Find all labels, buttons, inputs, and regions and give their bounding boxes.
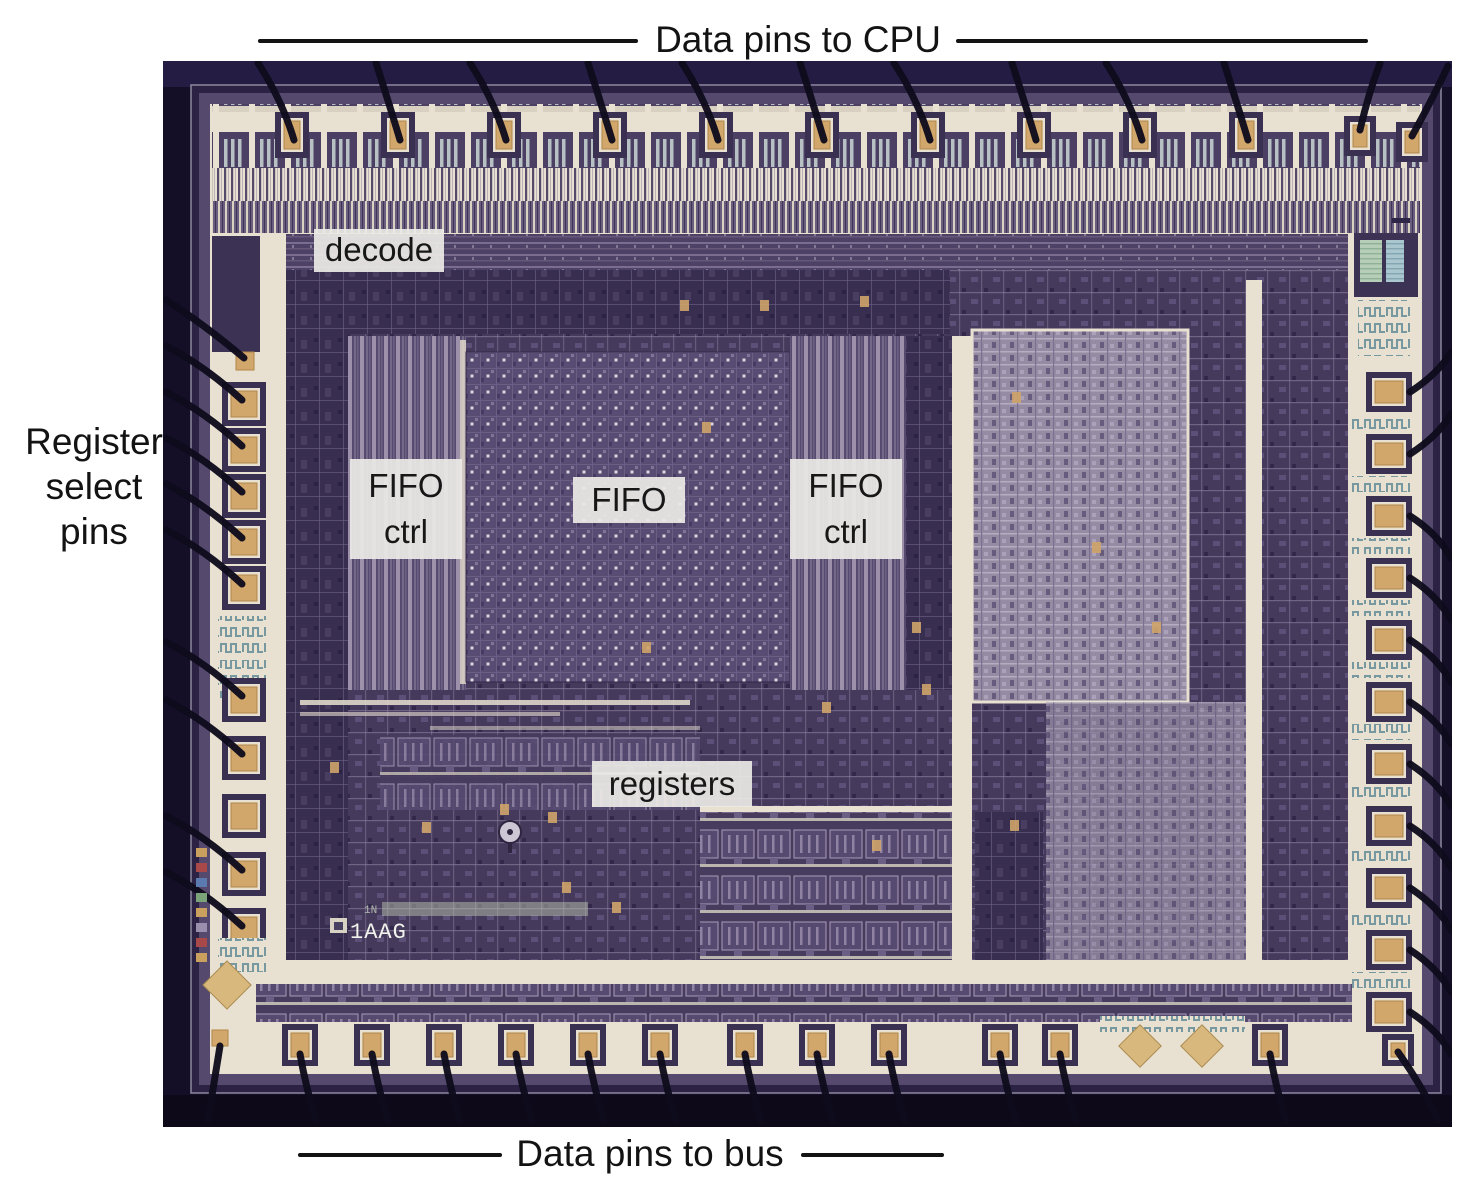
die-marking-serial: 1AAG [350, 920, 407, 945]
annotation-data-pins-to-cpu: Data pins to CPU [628, 18, 968, 62]
die-marking-small: 1N [364, 905, 377, 917]
bottom-rule-left [298, 1153, 502, 1157]
die-label-fifo: FIFO [573, 477, 685, 523]
die-label-decode: decode [314, 229, 444, 272]
annotated-die-photo-figure: Data pins to CPU Register select pins [0, 0, 1480, 1196]
top-rule-left [258, 39, 638, 43]
die-label-fifo-ctrl-right: FIFO ctrl [790, 459, 902, 559]
die-label-fifo-ctrl-left: FIFO ctrl [350, 459, 462, 559]
die-photo-image: 1N 1AAG [163, 61, 1452, 1127]
die-label-registers: registers [592, 761, 752, 807]
annotation-data-pins-to-bus: Data pins to bus [480, 1132, 820, 1176]
annotation-register-select-pins: Register select pins [6, 419, 182, 554]
bottom-rule-right [801, 1153, 944, 1157]
top-rule-right [956, 39, 1368, 43]
chip-die-photo: 1N 1AAG [163, 61, 1452, 1127]
